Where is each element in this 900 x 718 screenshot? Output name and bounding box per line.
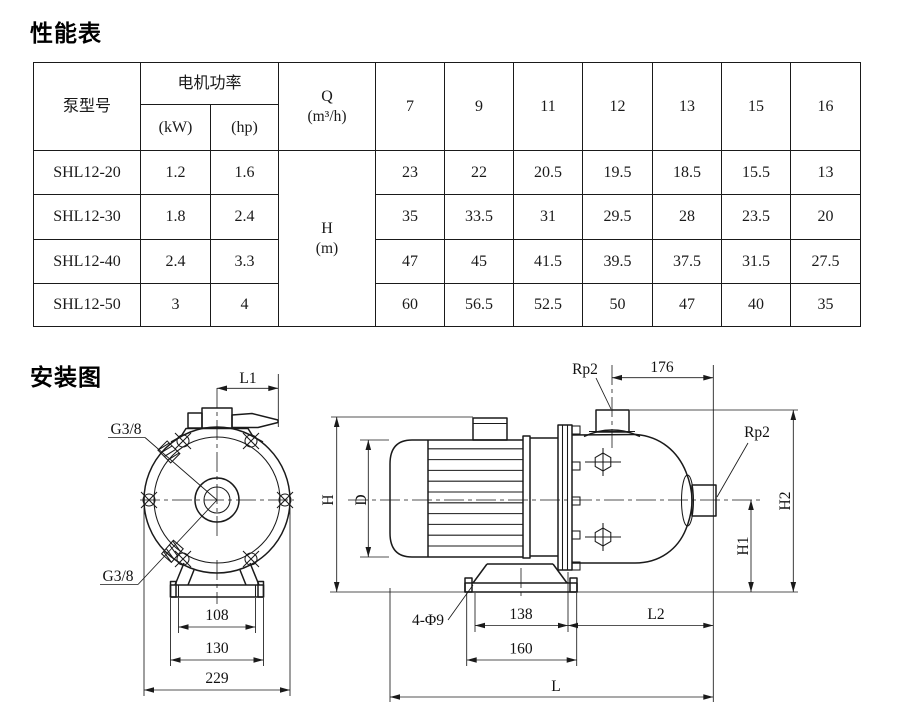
head-value-cell: 31 bbox=[514, 195, 583, 240]
head-value-cell: 45 bbox=[445, 240, 514, 284]
head-value-cell: 15.5 bbox=[722, 151, 791, 195]
pump-model-cell: SHL12-50 bbox=[34, 284, 141, 327]
head-value-cell: 47 bbox=[653, 284, 722, 327]
port-label-rp2-top: Rp2 bbox=[572, 361, 598, 378]
dim-label-foot-holes: 4-Φ9 bbox=[412, 612, 444, 629]
head-value-cell: 20.5 bbox=[514, 151, 583, 195]
hp-cell: 4 bbox=[211, 284, 279, 327]
kw-cell: 1.2 bbox=[141, 151, 211, 195]
head-value-cell: 19.5 bbox=[583, 151, 653, 195]
head-value-cell: 47 bbox=[376, 240, 445, 284]
flow-value-cell: 7 bbox=[376, 63, 445, 151]
header-hp: (hp) bbox=[211, 105, 279, 151]
head-value-cell: 27.5 bbox=[791, 240, 861, 284]
pump-model-cell: SHL12-20 bbox=[34, 151, 141, 195]
dim-label-l2: L2 bbox=[647, 606, 664, 623]
head-value-cell: 31.5 bbox=[722, 240, 791, 284]
head-value-cell: 29.5 bbox=[583, 195, 653, 240]
header-flow-q: Q (m³/h) bbox=[279, 63, 376, 151]
kw-cell: 3 bbox=[141, 284, 211, 327]
head-value-cell: 35 bbox=[791, 284, 861, 327]
flow-value-cell: 13 bbox=[653, 63, 722, 151]
head-value-cell: 52.5 bbox=[514, 284, 583, 327]
dim-label-176: 176 bbox=[650, 359, 674, 376]
head-value-cell: 60 bbox=[376, 284, 445, 327]
dim-label-108: 108 bbox=[205, 607, 229, 624]
flow-value-cell: 11 bbox=[514, 63, 583, 151]
q-symbol: Q bbox=[279, 87, 375, 107]
hp-cell: 2.4 bbox=[211, 195, 279, 240]
performance-table-title: 性能表 bbox=[30, 14, 102, 48]
head-value-cell: 33.5 bbox=[445, 195, 514, 240]
header-head-h: H (m) bbox=[279, 151, 376, 327]
head-value-cell: 28 bbox=[653, 195, 722, 240]
head-value-cell: 35 bbox=[376, 195, 445, 240]
head-value-cell: 50 bbox=[583, 284, 653, 327]
casing-plug-bottom bbox=[585, 523, 621, 551]
dim-label-229: 229 bbox=[205, 670, 229, 687]
flow-value-cell: 9 bbox=[445, 63, 514, 151]
flow-value-cell: 16 bbox=[791, 63, 861, 151]
performance-table: 泵型号 电机功率 Q (m³/h) 7 9 11 12 13 15 16 (kW… bbox=[33, 62, 861, 327]
dim-label-130: 130 bbox=[205, 640, 229, 657]
kw-cell: 2.4 bbox=[141, 240, 211, 284]
thread-label-g38-top: G3/8 bbox=[111, 421, 142, 438]
datasheet-page: { "performance_section": { "title": "性能表… bbox=[0, 0, 900, 718]
hp-cell: 3.3 bbox=[211, 240, 279, 284]
dim-label-h2: H2 bbox=[777, 492, 794, 511]
thread-label-g38-bottom: G3/8 bbox=[103, 568, 134, 585]
head-value-cell: 40 bbox=[722, 284, 791, 327]
h-unit: (m) bbox=[279, 239, 375, 258]
q-unit: (m³/h) bbox=[279, 107, 375, 126]
header-kw: (kW) bbox=[141, 105, 211, 151]
head-value-cell: 18.5 bbox=[653, 151, 722, 195]
dim-label-d: D bbox=[353, 494, 370, 505]
port-label-rp2-side: Rp2 bbox=[744, 424, 770, 441]
header-pump-model: 泵型号 bbox=[34, 63, 141, 151]
head-value-cell: 56.5 bbox=[445, 284, 514, 327]
dim-label-h1: H1 bbox=[735, 537, 752, 556]
dim-label-138: 138 bbox=[509, 606, 533, 623]
hp-cell: 1.6 bbox=[211, 151, 279, 195]
pump-model-cell: SHL12-30 bbox=[34, 195, 141, 240]
flow-value-cell: 15 bbox=[722, 63, 791, 151]
flow-value-cell: 12 bbox=[583, 63, 653, 151]
head-value-cell: 13 bbox=[791, 151, 861, 195]
kw-cell: 1.8 bbox=[141, 195, 211, 240]
dim-label-160: 160 bbox=[509, 641, 533, 658]
installation-drawing: L1 G3/8 G3/8 108 130 229 bbox=[0, 350, 900, 718]
dim-label-l: L bbox=[551, 678, 560, 695]
pump-front-view: L1 G3/8 G3/8 108 130 229 bbox=[100, 370, 294, 696]
dim-label-l1: L1 bbox=[239, 370, 256, 387]
header-motor-power: 电机功率 bbox=[141, 63, 279, 105]
head-value-cell: 23 bbox=[376, 151, 445, 195]
dim-label-h: H bbox=[320, 494, 337, 505]
pump-side-view: Rp2 176 Rp2 H D H2 H1 4-Φ9 138 L2 160 L bbox=[320, 359, 798, 702]
head-value-cell: 41.5 bbox=[514, 240, 583, 284]
head-value-cell: 22 bbox=[445, 151, 514, 195]
head-value-cell: 39.5 bbox=[583, 240, 653, 284]
pump-model-cell: SHL12-40 bbox=[34, 240, 141, 284]
head-value-cell: 37.5 bbox=[653, 240, 722, 284]
head-value-cell: 23.5 bbox=[722, 195, 791, 240]
head-value-cell: 20 bbox=[791, 195, 861, 240]
h-symbol: H bbox=[279, 219, 375, 239]
casing-plug-top bbox=[585, 448, 621, 476]
